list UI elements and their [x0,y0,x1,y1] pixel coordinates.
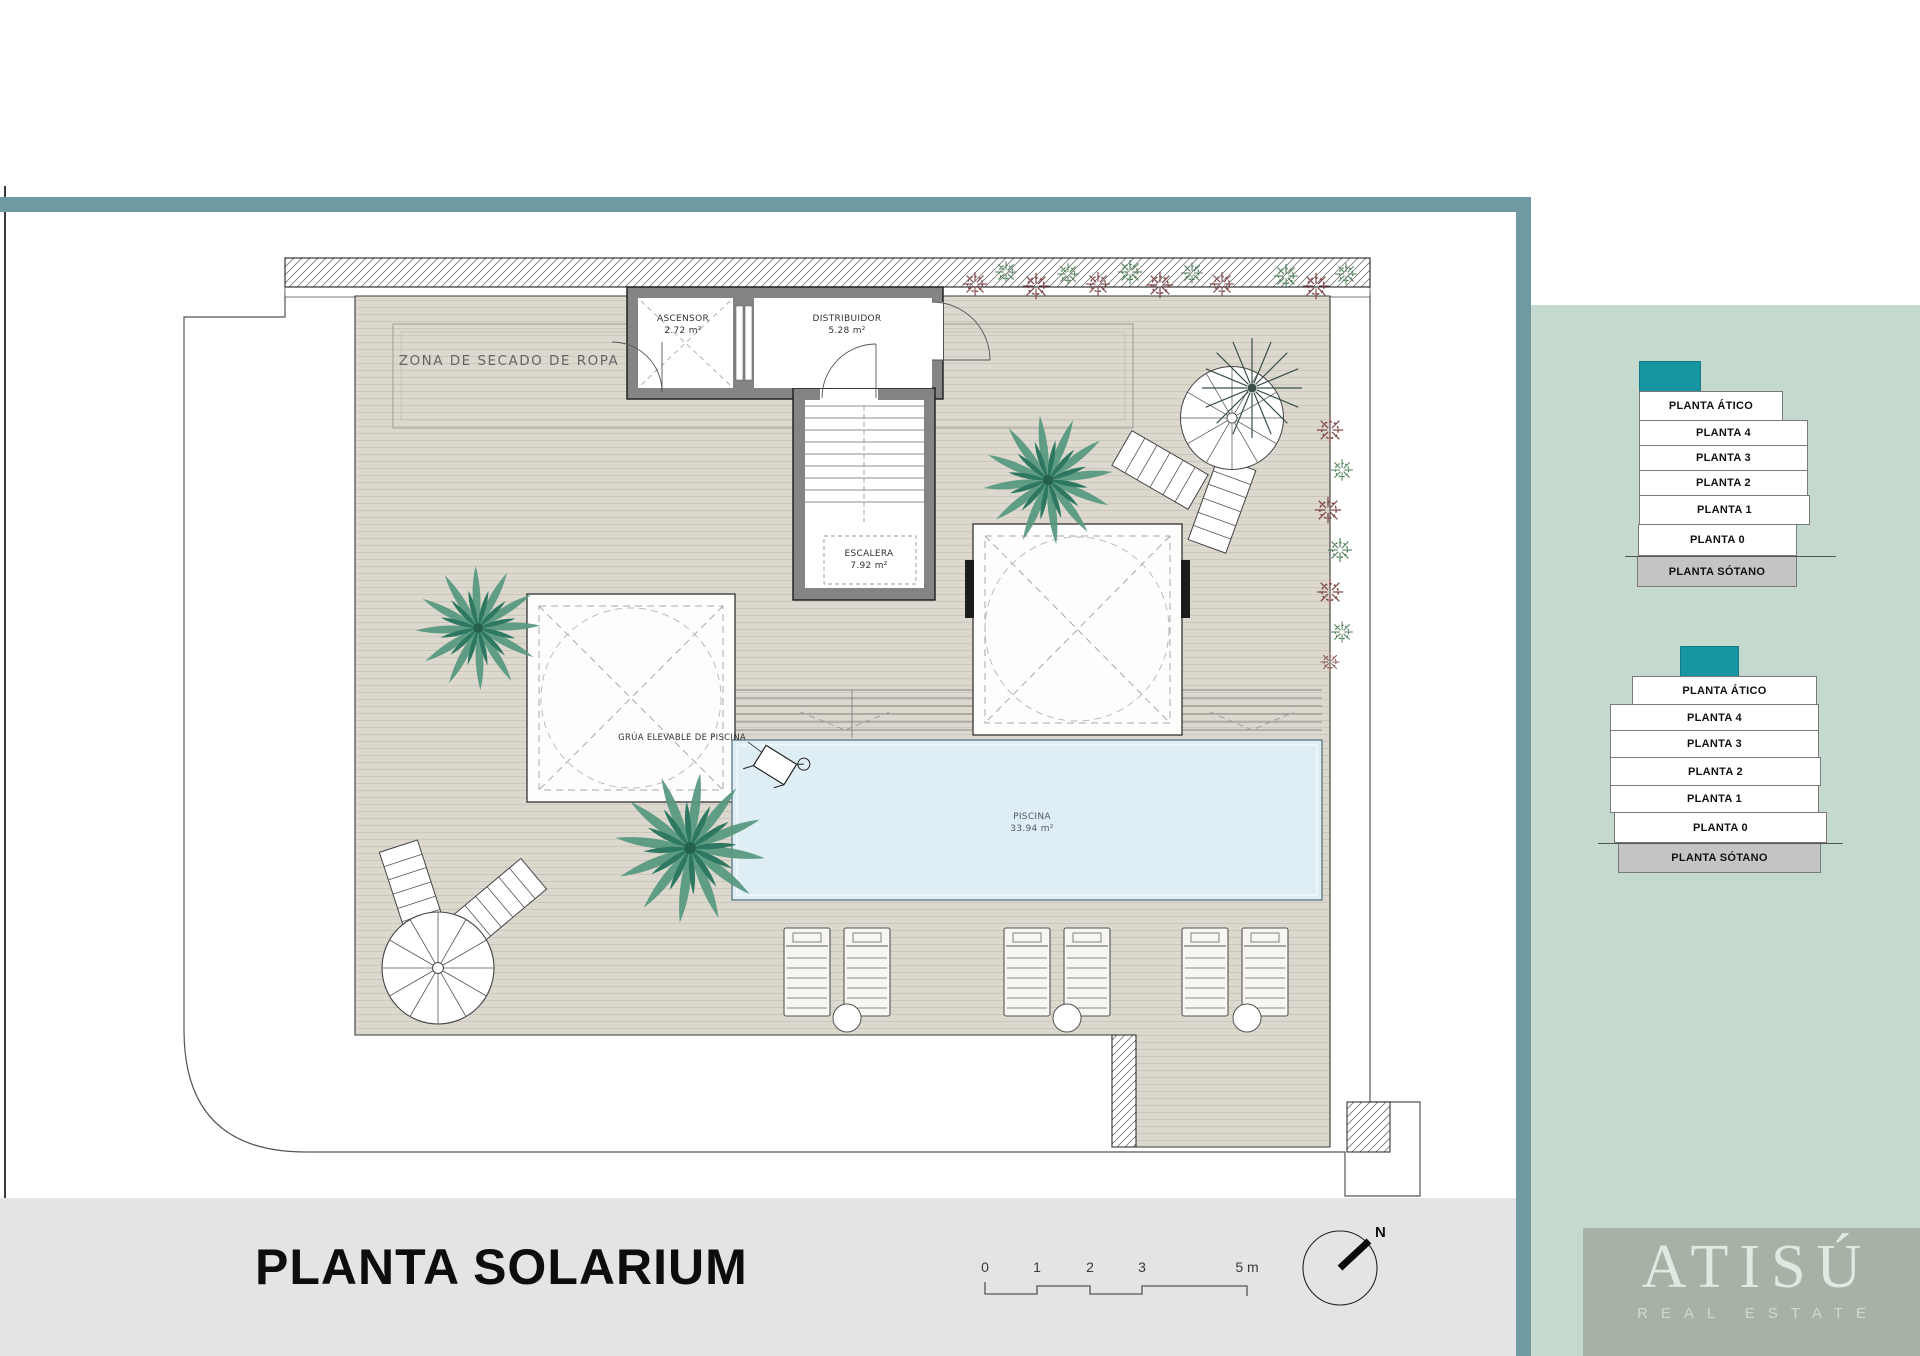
room-label-distribuidor: DISTRIBUIDOR5.28 m² [788,314,906,337]
floor-row-4[interactable]: PLANTA 4 [1610,704,1819,731]
floor-row-1[interactable]: PLANTA 1 [1610,785,1819,813]
floor-row-3[interactable]: PLANTA 3 [1639,445,1808,471]
deck-hatch-band [1112,1035,1136,1147]
brand-name: ATISÚ [1583,1232,1920,1303]
frame-bar-vertical [1516,197,1531,1356]
floor-row-0[interactable]: PLANTA 0 [1638,524,1797,556]
skylight-right [965,524,1190,735]
sun-loungers [784,928,1288,1032]
svg-text:1: 1 [1033,1259,1041,1275]
room-label-escalera: ESCALERA7.92 m² [818,549,920,572]
ground-line [1625,556,1836,557]
svg-text:2: 2 [1086,1259,1094,1275]
skylight-left [527,594,735,802]
floor-stack-1: PLANTA ÁTICO PLANTA 4 PLANTA 3 PLANTA 2 … [1625,361,1837,587]
fan-plant [1202,338,1302,438]
floor-row-sotano[interactable]: PLANTA SÓTANO [1637,556,1797,587]
svg-text:5 m: 5 m [1235,1259,1258,1275]
floor-row-2[interactable]: PLANTA 2 [1639,470,1808,496]
floor-row-2[interactable]: PLANTA 2 [1610,757,1821,786]
sheet-left-border [4,186,6,1198]
page-title: PLANTA SOLARIUM [255,1238,748,1296]
floor-row-atico[interactable]: PLANTA ÁTICO [1639,391,1783,421]
floor-highlight-solarium[interactable] [1639,361,1701,392]
north-label: N [1375,1224,1386,1241]
floor-row-0[interactable]: PLANTA 0 [1614,812,1827,843]
floor-stack-2: PLANTA ÁTICO PLANTA 4 PLANTA 3 PLANTA 2 … [1608,646,1830,873]
room-label-ascensor: ASCENSOR2.72 m² [633,314,733,337]
drying-zone-label: ZONA DE SECADO DE ROPA [396,353,622,371]
corner-hatch-block [1347,1102,1390,1152]
floor-row-atico[interactable]: PLANTA ÁTICO [1632,676,1817,705]
svg-text:0: 0 [981,1259,989,1275]
scale-bar: 0 1 2 3 5 m [975,1256,1275,1302]
side-table [1053,1004,1081,1032]
floor-row-3[interactable]: PLANTA 3 [1610,730,1819,758]
roof-hatch-strip [285,258,1370,287]
brand-logo: ATISÚ REAL ESTATE [1583,1228,1920,1356]
footer-strip [0,1198,1516,1356]
floor-row-sotano[interactable]: PLANTA SÓTANO [1618,843,1821,873]
pool-hoist-label: GRÚA ELEVABLE DE PISCINA [596,733,746,744]
north-compass: N [1294,1216,1398,1320]
floor-highlight-solarium[interactable] [1680,646,1739,677]
side-table [1233,1004,1261,1032]
side-table [833,1004,861,1032]
ground-line [1598,843,1843,844]
page: ZONA DE SECADO DE ROPA ASCENSOR2.72 m² D… [0,0,1920,1356]
svg-text:3: 3 [1138,1259,1146,1275]
floor-row-4[interactable]: PLANTA 4 [1639,420,1808,446]
room-label-piscina: PISCINA33.94 m² [972,812,1092,835]
frame-bar-horizontal [0,197,1531,212]
floor-row-1[interactable]: PLANTA 1 [1639,495,1810,525]
brand-tagline: REAL ESTATE [1583,1305,1920,1322]
